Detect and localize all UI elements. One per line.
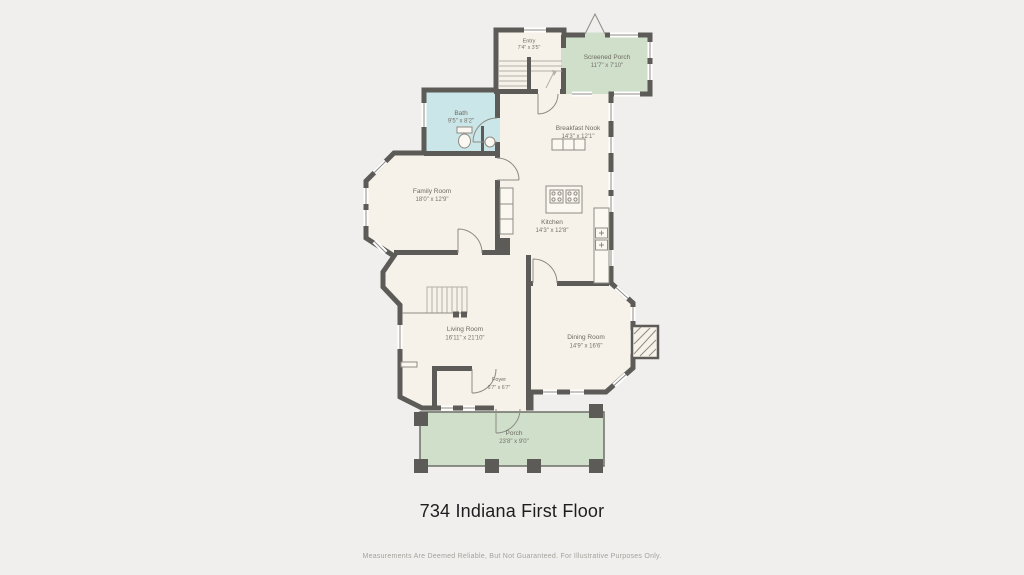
room-dims-kitchen: 14'3" x 12'8" [536, 228, 569, 234]
room-label-kitchen: Kitchen [541, 219, 563, 226]
room-dims-screened-porch: 11'7" x 7'10" [591, 63, 623, 69]
room-label-living-room: Living Room [447, 326, 483, 333]
toilet-tank [457, 127, 472, 133]
room-label-entry: Entry [523, 39, 536, 45]
room-dims-porch: 23'8" x 9'0" [499, 439, 529, 445]
room-label-foyer: Foyer [492, 377, 506, 383]
room-label-screened-porch: Screened Porch [584, 54, 631, 61]
room-dims-bath: 9'5" x 8'2" [448, 119, 474, 125]
toilet-bowl [459, 134, 471, 148]
disclaimer-text: Measurements Are Deemed Reliable, But No… [0, 553, 1024, 560]
upper-cabinet [552, 139, 585, 150]
room-dims-entry: 7'4" x 3'5" [518, 45, 541, 51]
room-label-bath: Bath [454, 110, 468, 117]
room-label-porch: Porch [506, 430, 523, 437]
fireplace [632, 326, 658, 358]
room-dims-breakfast-nook: 14'3" x 12'1" [562, 134, 595, 140]
room-dims-foyer: 6'7" x 6'7" [488, 385, 511, 391]
left-counter [500, 188, 513, 234]
room-label-family-room: Family Room [413, 188, 451, 195]
room-label-breakfast-nook: Breakfast Nook [556, 125, 601, 132]
bath-sink [485, 137, 495, 147]
room-dims-family-room: 18'0" x 12'9" [416, 197, 449, 203]
page-title: 734 Indiana First Floor [0, 501, 1024, 522]
floor-plan-page: Entry 7'4" x 3'5" Screened Porch 11'7" x… [0, 0, 1024, 575]
room-dims-dining-room: 14'9" x 16'6" [570, 344, 603, 350]
room-label-dining-room: Dining Room [567, 334, 605, 341]
floor-plan-drawing: Entry 7'4" x 3'5" Screened Porch 11'7" x… [0, 0, 1024, 500]
room-dims-living-room: 16'11" x 21'10" [445, 336, 484, 342]
window-seat [401, 362, 417, 367]
